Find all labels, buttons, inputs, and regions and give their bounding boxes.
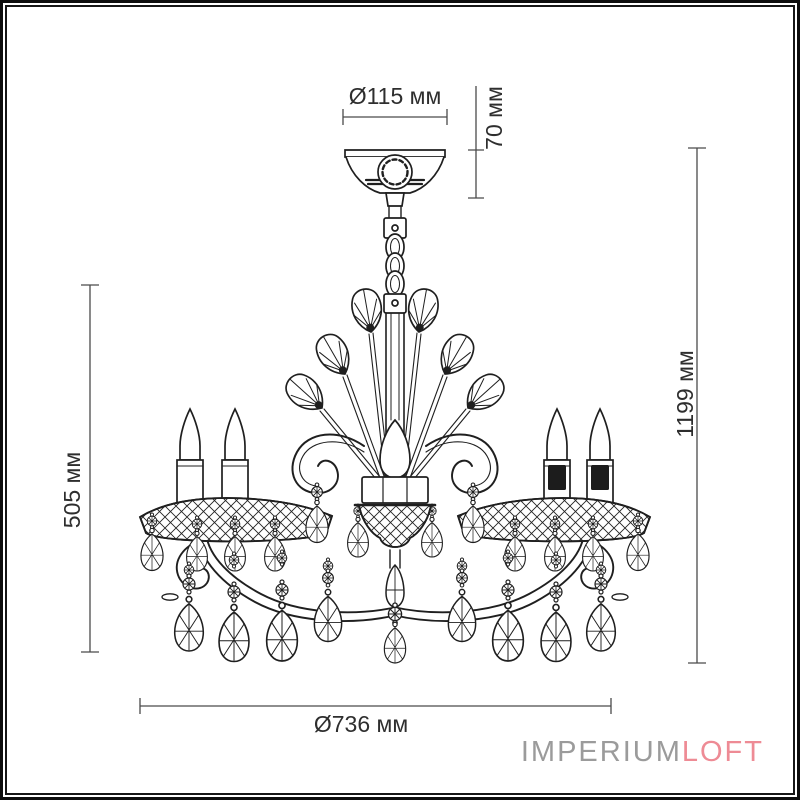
scroll-ornament [292, 435, 364, 494]
dimension-canopy-diameter-line [343, 109, 447, 125]
canopy [345, 150, 445, 206]
dimension-total-height-label: 1199 мм [673, 314, 697, 474]
hub-block [362, 477, 428, 503]
dimension-canopy-height-label: 70 мм [482, 58, 506, 178]
chain-assembly [384, 206, 406, 313]
brand-logo: IMPERIUMLOFT [521, 736, 764, 768]
dimension-fixture-diameter-label: Ø736 мм [251, 712, 471, 736]
candle-socket [548, 465, 566, 490]
dimension-canopy-diameter-label: Ø115 мм [295, 84, 495, 108]
product-dimension-diagram: Ø115 мм 70 мм 505 мм 1199 мм Ø736 мм IMP… [0, 0, 800, 800]
brand-logo-primary: IMPERIUM [521, 736, 682, 768]
central-finial-crystals [384, 565, 405, 663]
dimension-body-height-label: 505 мм [60, 415, 84, 565]
candle-socket [591, 465, 609, 490]
central-candle [380, 420, 410, 478]
brand-logo-accent: LOFT [682, 736, 764, 768]
leaf-ornaments [280, 287, 385, 419]
